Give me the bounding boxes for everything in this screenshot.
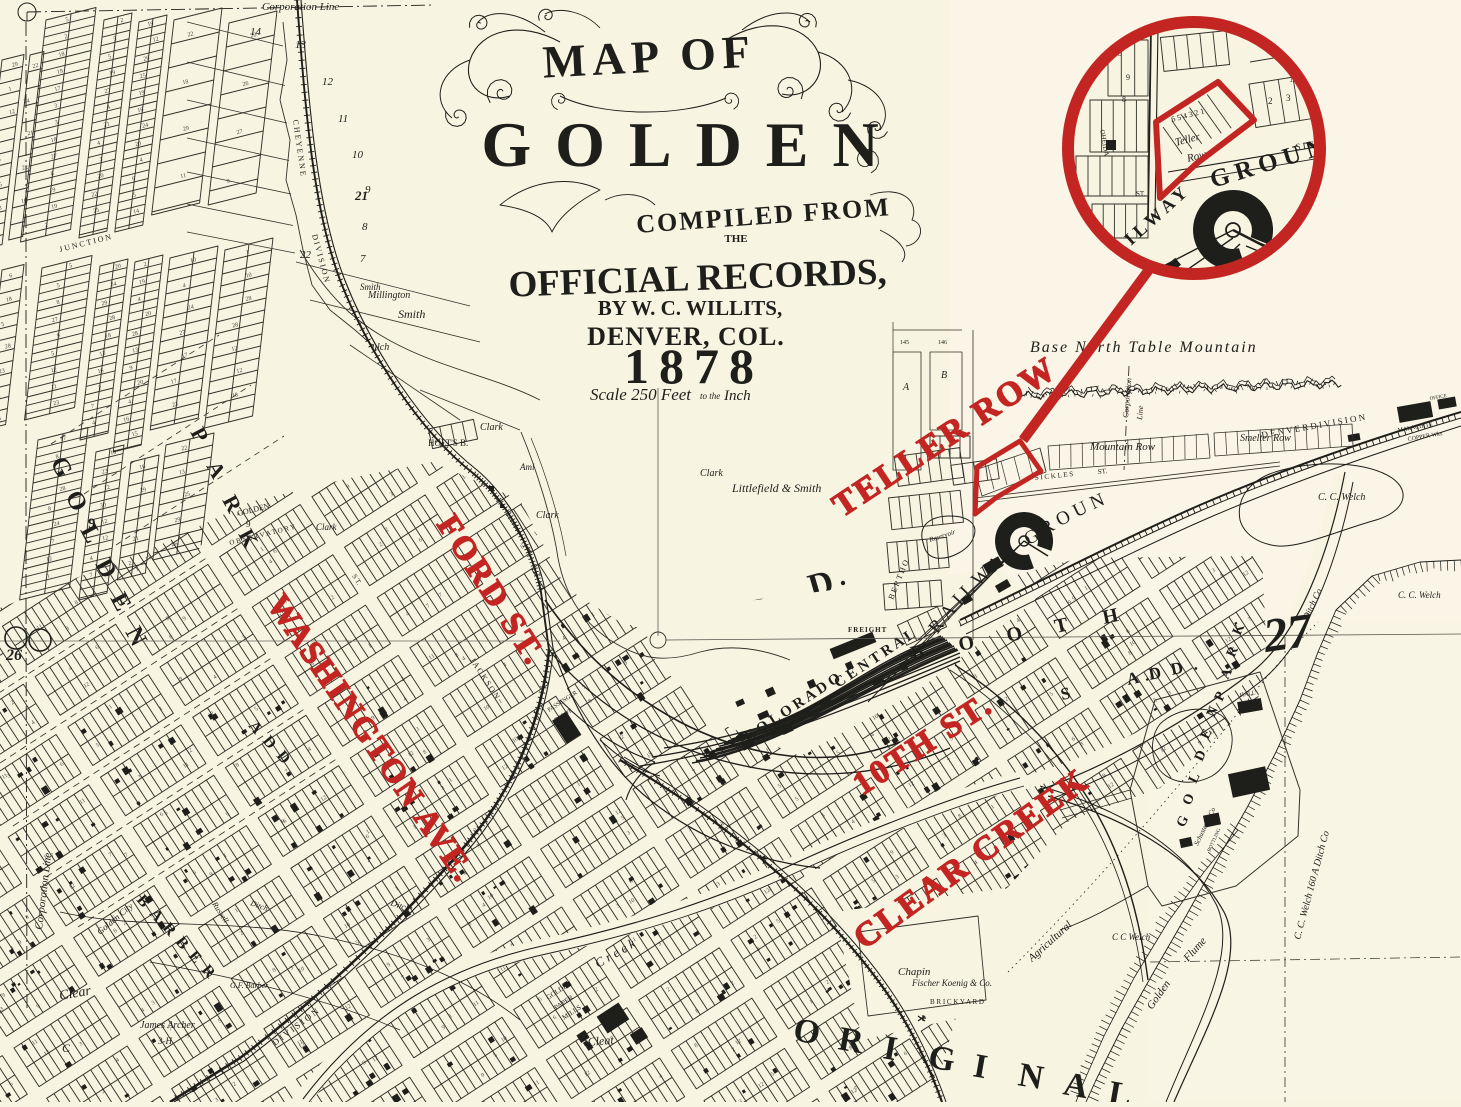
svg-text:ST.: ST.	[1097, 467, 1107, 476]
svg-text:Smith: Smith	[398, 307, 425, 321]
svg-text:C. C. Welch: C. C. Welch	[1398, 590, 1441, 600]
svg-text:26: 26	[5, 647, 22, 664]
svg-text:Clark: Clark	[316, 522, 338, 532]
svg-text:ST.: ST.	[1136, 190, 1146, 198]
svg-text:Fischer Koenig & Co.: Fischer Koenig & Co.	[911, 978, 992, 988]
svg-text:Clark: Clark	[536, 510, 559, 521]
svg-text:Inch: Inch	[723, 388, 751, 404]
svg-text:C: C	[62, 1041, 71, 1055]
svg-text:Littlefield & Smith: Littlefield & Smith	[731, 481, 821, 495]
svg-text:21: 21	[354, 188, 368, 203]
svg-text:C C Welch: C C Welch	[1112, 932, 1151, 942]
svg-text:3: 3	[1286, 93, 1291, 103]
svg-text:Clark: Clark	[700, 468, 723, 479]
svg-text:3-H: 3-H	[157, 1036, 172, 1046]
svg-text:8: 8	[1122, 95, 1126, 104]
svg-text:146: 146	[938, 340, 947, 346]
svg-text:12: 12	[322, 76, 334, 88]
svg-text:Scale 250 Feet: Scale 250 Feet	[590, 385, 692, 404]
svg-text:B: B	[941, 370, 947, 381]
svg-text:GOLDEN: GOLDEN	[481, 109, 902, 180]
svg-text:145: 145	[900, 340, 909, 346]
svg-text:10: 10	[352, 149, 364, 161]
svg-text:to the: to the	[700, 391, 720, 401]
svg-text:Line: Line	[1135, 405, 1145, 421]
svg-text:9: 9	[88, 516, 96, 532]
svg-text:Base North Table Mountain: Base North Table Mountain	[1030, 339, 1258, 356]
svg-text:C. C. Welch: C. C. Welch	[1318, 492, 1365, 503]
svg-text:11: 11	[338, 113, 348, 125]
svg-text:A: A	[902, 382, 910, 393]
svg-text:2: 2	[1268, 96, 1273, 106]
svg-text:Mountain Row: Mountain Row	[1089, 441, 1156, 453]
svg-text:G.F. Barber: G.F. Barber	[230, 981, 269, 990]
svg-text:7: 7	[360, 253, 366, 265]
svg-text:9: 9	[1126, 73, 1130, 82]
svg-text:Smelter Row: Smelter Row	[1240, 433, 1291, 444]
svg-text:Cleat: Cleat	[587, 1033, 615, 1049]
svg-text:BY W. C. WILLITS,: BY W. C. WILLITS,	[598, 296, 782, 320]
svg-text:FREIGHT: FREIGHT	[848, 626, 887, 634]
svg-text:B R I C K Y A R D: B R I C K Y A R D	[930, 998, 984, 1006]
svg-text:14: 14	[250, 26, 262, 38]
svg-text:THE: THE	[724, 233, 747, 245]
svg-text:Clark: Clark	[480, 422, 503, 433]
svg-text:HOLT'S B.: HOLT'S B.	[428, 438, 468, 448]
svg-text:Smith: Smith	[360, 282, 381, 292]
svg-text:8: 8	[362, 221, 368, 233]
svg-text:Ami: Ami	[519, 462, 535, 472]
svg-text:Chapin: Chapin	[898, 966, 931, 978]
svg-text:James Archer: James Archer	[140, 1020, 195, 1031]
